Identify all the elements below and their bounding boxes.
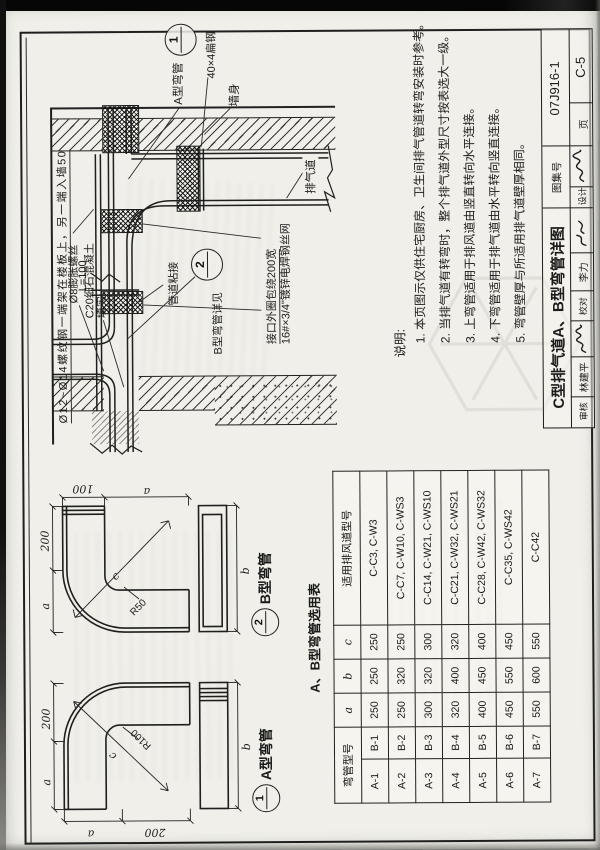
detail-mark-2: 2 bbox=[191, 248, 223, 280]
cell-model-a: A-4 bbox=[443, 758, 470, 802]
cell-model-b: B-2 bbox=[388, 727, 415, 759]
checker-name: 李力 bbox=[575, 254, 590, 290]
col-header-model: 弯管型号 bbox=[334, 727, 361, 803]
fig-a-mark-divider bbox=[266, 787, 267, 809]
cell-a: 250 bbox=[388, 693, 415, 727]
table-caption: A、B型弯管选用表 bbox=[303, 472, 324, 804]
fig-a-dim-200-left: 200 bbox=[144, 826, 165, 839]
cell-model-b: B-5 bbox=[469, 726, 496, 758]
cell-b: 320 bbox=[415, 659, 442, 693]
drawing-sheet: Ø12~Ø14螺纹钢一端架在楼板上，另一端入墙50 Ø8膨胀螺丝 L=100 C… bbox=[0, 0, 600, 850]
fig-b-name: B型弯管 bbox=[255, 552, 275, 604]
table-header-row: 弯管型号 a b c 适用排风道型号 bbox=[333, 471, 362, 803]
cell-model-a: A-7 bbox=[524, 758, 551, 802]
fig-a-mark-number: 1 bbox=[254, 785, 266, 811]
checker-label: 校对 bbox=[576, 292, 589, 320]
cell-b: 400 bbox=[442, 658, 469, 692]
cell-use: C-C42 bbox=[522, 470, 550, 624]
checker-signature bbox=[572, 217, 592, 249]
note-line: 5. 弯管壁厚与所适用排气道壁厚相同。 bbox=[510, 137, 528, 342]
title-block-cell-divider bbox=[569, 102, 592, 103]
atlas-number-value: 07J916-1 bbox=[547, 32, 563, 144]
b-elbow-reference: B型弯管详见 bbox=[209, 292, 225, 354]
title-block-cell-divider bbox=[570, 252, 593, 253]
note-line: 2. 当排气道有转弯时，整个排气道外型尺寸按表选大一级。 bbox=[435, 30, 454, 343]
cell-c: 250 bbox=[388, 625, 415, 659]
fig-a-mark: 1 bbox=[252, 784, 280, 812]
fig-a-dim-200-top: 200 bbox=[40, 709, 53, 730]
title-block-col-divider bbox=[543, 207, 593, 208]
cell-model-a: A-1 bbox=[362, 759, 389, 803]
table-row: A-4B-4320400320C-C21, C-W32, C-WS21 bbox=[441, 470, 470, 802]
cell-b: 450 bbox=[469, 658, 496, 692]
cell-c: 300 bbox=[415, 625, 442, 659]
designer-label: 设计 bbox=[576, 186, 589, 206]
wall-label: 墙身 bbox=[226, 83, 242, 106]
exhaust-duct-label: 排气道 bbox=[302, 157, 318, 196]
cell-use: C-C35, C-WS42 bbox=[495, 470, 523, 624]
cell-use: C-C28, C-W42, C-WS32 bbox=[468, 470, 496, 624]
cell-model-a: A-2 bbox=[389, 759, 416, 803]
col-header-c: c bbox=[334, 625, 361, 659]
cell-model-b: B-7 bbox=[523, 726, 550, 758]
fig-b-dim-200-top: 200 bbox=[39, 531, 52, 552]
drawing-title: C型排气道A、B型弯管详图 bbox=[547, 211, 569, 423]
detail-mark-2-divider bbox=[207, 252, 208, 278]
mesh-note-line2: 16#×3/4"镀锌电焊钢丝网 bbox=[277, 223, 294, 344]
table-row: A-6B-6450550450C-C35, C-WS42 bbox=[495, 470, 524, 802]
table-row: A-1B-1250250250C-C3, C-W3 bbox=[360, 471, 389, 803]
cell-c: 320 bbox=[442, 624, 469, 658]
scanned-page: Ø12~Ø14螺纹钢一端架在楼板上，另一端入墙50 Ø8膨胀螺丝 L=100 C… bbox=[0, 0, 600, 850]
cell-a: 300 bbox=[415, 693, 442, 727]
cell-a: 320 bbox=[442, 692, 469, 726]
detail-mark-1-divider bbox=[181, 27, 182, 53]
detail-mark-1-number: 1 bbox=[167, 25, 181, 55]
reviewer-name: 林建平 bbox=[576, 358, 591, 396]
cell-b: 600 bbox=[523, 658, 550, 692]
page-label: 页 bbox=[575, 104, 590, 144]
cell-model-b: B-3 bbox=[415, 727, 442, 759]
fig-a-dim-b: b bbox=[240, 743, 253, 750]
fig-b-dim-a-top: a bbox=[39, 603, 52, 610]
title-block-col-divider bbox=[542, 145, 592, 146]
table-row: A-3B-3300320300C-C14, C-W21, C-WS10 bbox=[414, 471, 443, 803]
cell-a: 400 bbox=[469, 692, 496, 726]
cell-b: 320 bbox=[388, 659, 415, 693]
elbow-selection-table: 弯管型号 a b c 适用排风道型号 A-1B-1250250250C-C3, … bbox=[332, 469, 551, 803]
table-row: A-5B-5400450400C-C28, C-W42, C-WS32 bbox=[468, 470, 497, 802]
cell-c: 450 bbox=[496, 624, 523, 658]
fig-a-name: A型弯管 bbox=[256, 728, 276, 780]
cell-model-b: B-4 bbox=[442, 726, 469, 758]
table-row: A-2B-2250320250C-C7, C-W10, C-WS3 bbox=[387, 471, 416, 803]
concrete-fill-label2: 填实 bbox=[93, 296, 109, 318]
note-line: 4. 下弯管适用于排气道由水平转向竖直连接。 bbox=[485, 101, 503, 342]
fig-b-dim-100-right: 100 bbox=[72, 482, 93, 495]
atlas-number-label: 图集号 bbox=[549, 148, 564, 206]
cell-c: 400 bbox=[469, 624, 496, 658]
fig-b-mark-number: 2 bbox=[253, 609, 265, 635]
note-line: 3. 上弯管适用于排风道由竖直转向水平连接。 bbox=[460, 102, 478, 343]
cell-model-b: B-6 bbox=[496, 726, 523, 758]
cell-use: C-C21, C-W32, C-WS21 bbox=[441, 470, 469, 624]
col-header-b: b bbox=[334, 659, 361, 693]
scan-edge-bottom bbox=[0, 843, 600, 850]
cell-model-a: A-5 bbox=[470, 758, 497, 802]
col-header-a: a bbox=[334, 693, 361, 727]
fig-b-dim-a-right: a bbox=[144, 485, 151, 498]
cell-model-b: B-1 bbox=[361, 727, 388, 759]
cell-c: 250 bbox=[361, 625, 388, 659]
cell-use: C-C7, C-W10, C-WS3 bbox=[387, 471, 415, 625]
reviewer-label: 审核 bbox=[577, 397, 590, 425]
page-number: C-5 bbox=[573, 32, 588, 102]
note-line: 1. 本页图示仅供住宅厨房、卫生间排气管道转弯安装时参考。 bbox=[410, 18, 429, 343]
scan-edge-right bbox=[595, 0, 600, 850]
cell-model-a: A-6 bbox=[497, 758, 524, 802]
fig-a-dim-a-left: a bbox=[88, 827, 95, 840]
fig-a-dim-a-top: a bbox=[40, 779, 53, 786]
flat-steel-label: 40×4扁钢 bbox=[203, 32, 219, 79]
title-block-cell-divider bbox=[571, 356, 594, 357]
title-block-cell-divider bbox=[570, 320, 593, 321]
cell-use: C-C14, C-W21, C-WS10 bbox=[414, 471, 442, 625]
elbow-figures-linework bbox=[40, 455, 252, 836]
fig-b-mark: 2 bbox=[251, 608, 279, 636]
cell-use: C-C3, C-W3 bbox=[360, 471, 388, 625]
table-row: A-7B-7550600550C-C42 bbox=[522, 470, 551, 802]
cell-model-a: A-3 bbox=[416, 759, 443, 803]
pipe-joint-label: 管道粘接 bbox=[165, 262, 181, 306]
cell-b: 550 bbox=[496, 658, 523, 692]
scan-edge-left bbox=[0, 0, 6, 850]
cell-a: 450 bbox=[496, 692, 523, 726]
reviewer-signature bbox=[572, 323, 592, 355]
cell-c: 550 bbox=[523, 624, 550, 658]
detail-mark-2-number: 2 bbox=[193, 250, 207, 280]
title-block-cell-divider bbox=[570, 290, 593, 291]
cell-a: 250 bbox=[361, 693, 388, 727]
fig-b-mark-divider bbox=[265, 611, 266, 633]
col-header-use: 适用排风道型号 bbox=[333, 471, 361, 625]
cell-b: 250 bbox=[361, 659, 388, 693]
fig-b-dim-b: b bbox=[239, 567, 252, 574]
cell-a: 550 bbox=[523, 692, 550, 726]
notes-heading: 说明: bbox=[389, 329, 408, 358]
detail-mark-1: 1 bbox=[165, 24, 197, 56]
scan-edge-top bbox=[0, 0, 600, 11]
title-block: C型排气道A、B型弯管详图 图集号 07J916-1 审核 林建平 校对 李力 … bbox=[541, 28, 595, 428]
designer-signature bbox=[571, 148, 591, 184]
detail-linework bbox=[37, 0, 350, 457]
a-elbow-label: A型弯管 bbox=[170, 63, 186, 105]
